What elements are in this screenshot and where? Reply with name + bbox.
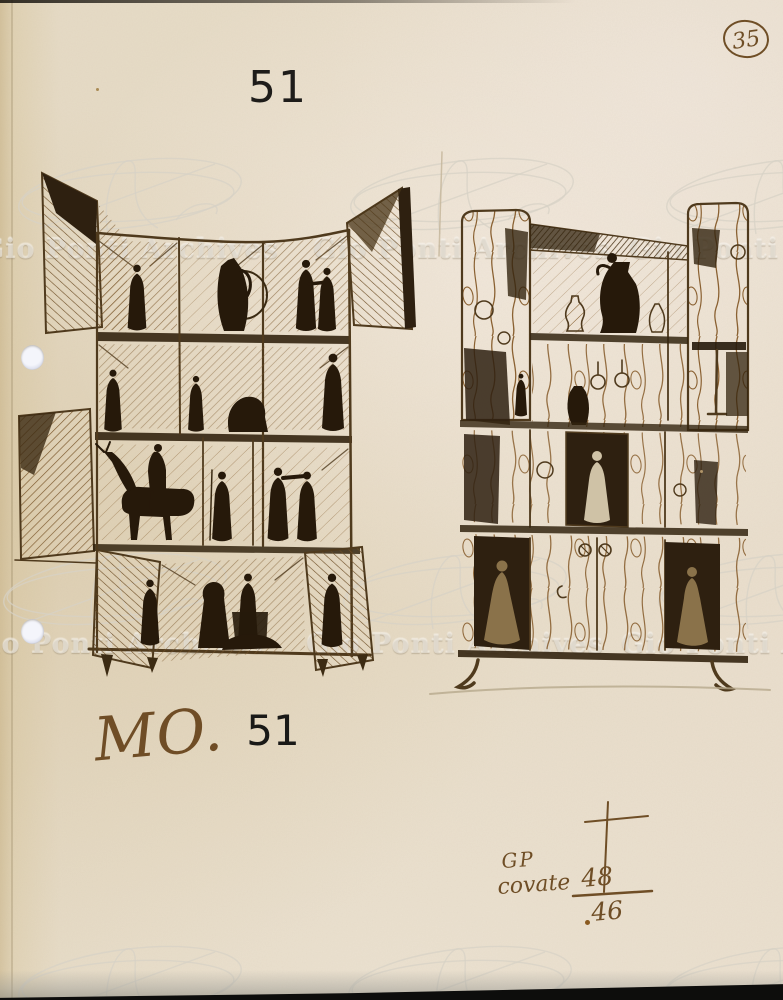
lady-figurine — [677, 567, 708, 646]
bottom-row-doors — [458, 534, 748, 690]
figurine — [296, 260, 316, 331]
hole-punch-top — [21, 345, 44, 370]
figurine — [188, 376, 204, 432]
cross-mark — [604, 802, 608, 892]
niche — [474, 536, 530, 650]
door-knob — [599, 544, 611, 556]
folio-circle — [722, 19, 770, 59]
niche — [566, 432, 628, 527]
cabriole-leg — [458, 660, 478, 688]
gio-ponti-signature-watermark — [0, 545, 265, 633]
figurine — [104, 370, 122, 432]
middle-row — [460, 342, 748, 433]
ring-sculpture — [219, 271, 267, 319]
cabinet-legs — [101, 654, 368, 677]
folio-number: 35 — [731, 26, 762, 55]
sheet-number: 51 — [248, 62, 308, 113]
annotation-numerator: 48 — [579, 861, 614, 893]
cabinet-ear-left — [462, 210, 530, 420]
horse-and-rider-figurine — [96, 442, 194, 540]
cabinet-shading — [99, 236, 350, 662]
cabinet-wing-top-right — [347, 187, 416, 329]
lady-figurine — [584, 451, 610, 523]
gio-ponti-signature-watermark — [0, 150, 280, 238]
ink-speck — [585, 920, 590, 925]
vase — [566, 296, 585, 331]
ink-speck — [96, 88, 99, 91]
caption-handwritten-prefix: MO. — [91, 695, 226, 776]
door-knob — [579, 544, 591, 556]
ink-speck — [700, 470, 703, 473]
table-scene-figurines — [198, 574, 282, 650]
figurine — [128, 265, 147, 331]
watermark: Gio Ponti Archives — [620, 545, 783, 660]
cabinet-door-left-tall — [15, 409, 96, 563]
sketch-left-cabinet — [15, 173, 416, 677]
cabinet-frame — [89, 230, 370, 656]
watermark: Gio Ponti Archives — [628, 150, 783, 265]
vase — [217, 258, 248, 331]
cross-mark — [585, 816, 648, 822]
fraction-line — [573, 891, 652, 896]
caption-number: 51 — [246, 706, 299, 755]
pencil-guide-line — [439, 152, 442, 256]
niche — [665, 542, 720, 650]
cabriole-leg — [712, 662, 732, 690]
lady-figurine — [484, 561, 520, 645]
figurine — [322, 354, 344, 431]
figurine — [141, 580, 160, 646]
niche-row-figure — [460, 430, 748, 536]
figurine — [322, 574, 343, 648]
scan-edge-top — [0, 0, 640, 3]
cabinet-ear-right — [688, 203, 748, 430]
seated-figurine — [228, 397, 268, 432]
paper-grain-texture — [0, 0, 783, 1000]
sketch-right-cabinet — [430, 152, 770, 694]
figurine — [318, 268, 336, 331]
caption: MO. 51 — [94, 700, 300, 770]
paper-crease — [11, 0, 13, 1000]
cabinet-wing-top-left — [42, 173, 128, 333]
cabinet-top-band — [530, 224, 688, 260]
watermark-text: Gio Ponti Archives — [305, 629, 605, 660]
gio-ponti-signature-watermark — [305, 545, 605, 633]
figurines — [96, 258, 344, 650]
gio-ponti-signature-watermark — [312, 150, 612, 238]
pencil-ground-line — [430, 687, 770, 694]
cabinet-doors-bottom — [93, 547, 373, 670]
gio-ponti-signature-watermark — [628, 150, 783, 238]
pedestal-table — [692, 342, 746, 350]
hole-punch-bottom — [21, 619, 44, 644]
watermark-text: Gio Ponti Archives — [628, 234, 783, 265]
figurine — [297, 472, 317, 542]
pitcher — [600, 262, 640, 333]
vase — [567, 386, 589, 425]
watermark: Gio Ponti Archives — [312, 150, 612, 265]
folio-number-circled: 35 — [715, 14, 779, 66]
figurine — [268, 468, 289, 542]
figurine — [212, 472, 232, 542]
door-knob — [558, 586, 567, 598]
vase — [650, 304, 665, 332]
figurine — [515, 374, 527, 417]
gio-ponti-signature-watermark — [620, 545, 783, 633]
watermark-text: Gio Ponti Archives — [312, 234, 612, 265]
scanned-sketch-page: Gio Ponti Archives Gio Ponti Archives Gi… — [0, 0, 783, 1000]
annotation-initials: GP — [501, 847, 536, 873]
watermark-text: Gio Ponti Archives — [620, 629, 783, 660]
watermark-text: Gio Ponti Archives — [0, 234, 280, 265]
niche-row-vases — [530, 252, 688, 420]
ink-drawing-layer — [0, 0, 783, 1000]
watermark: Gio Ponti Archives — [0, 545, 265, 660]
watermark: Gio Ponti Archives — [305, 545, 605, 660]
annotation-denominator: 46 — [589, 895, 624, 927]
annotation-word: covate — [497, 870, 572, 900]
watermark: Gio Ponti Archives — [0, 150, 280, 265]
handwritten-annotation: GP covate 48 46 — [480, 790, 690, 940]
